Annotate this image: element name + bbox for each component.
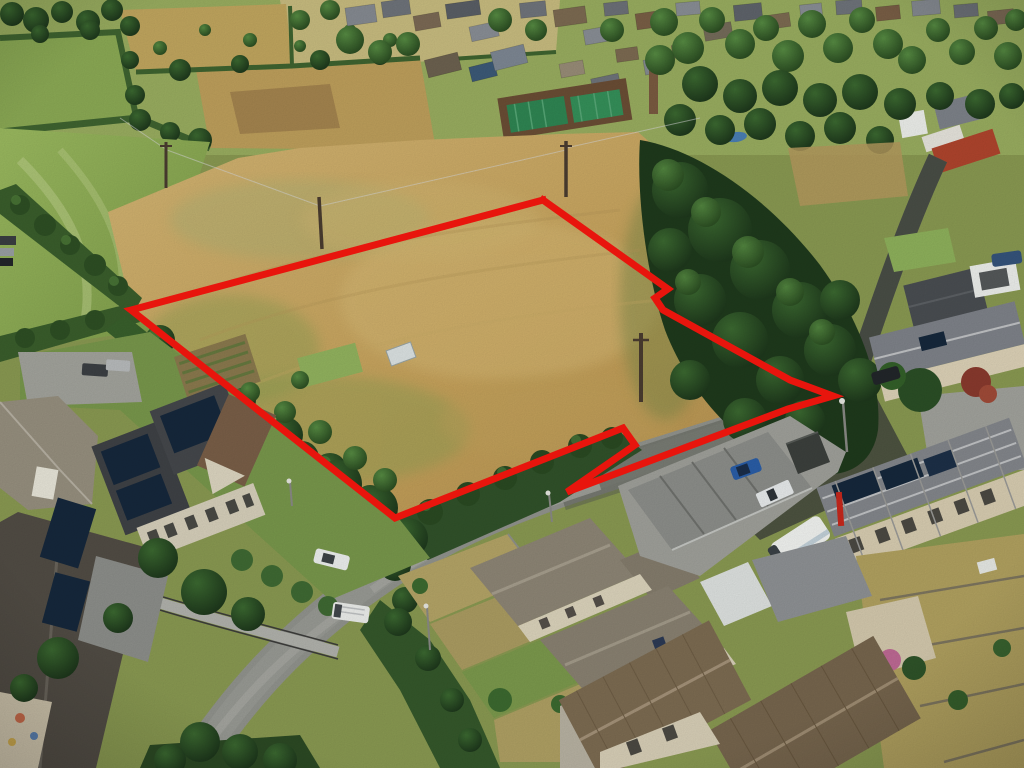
vignette <box>0 0 1024 768</box>
aerial-photo-canvas <box>0 0 1024 768</box>
aerial-photo <box>0 0 1024 768</box>
